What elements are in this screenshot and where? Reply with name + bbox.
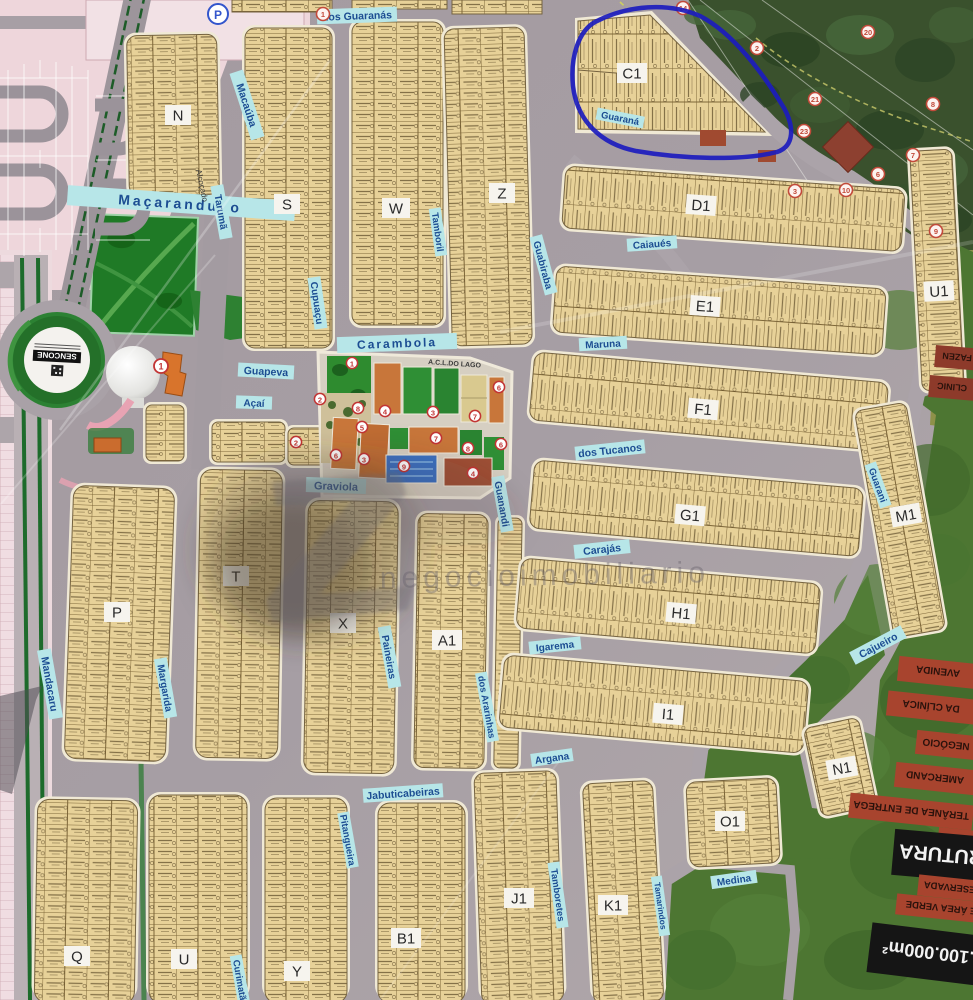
svg-text:7: 7 xyxy=(473,413,477,422)
svg-text:5: 5 xyxy=(360,424,364,433)
svg-text:23: 23 xyxy=(800,127,808,136)
svg-text:Carambola: Carambola xyxy=(357,335,437,352)
svg-text:Açaí: Açaí xyxy=(243,398,266,410)
svg-text:M1: M1 xyxy=(894,506,917,526)
svg-text:E1: E1 xyxy=(695,298,715,316)
svg-text:8: 8 xyxy=(356,405,360,414)
svg-text:U1: U1 xyxy=(929,283,949,301)
svg-text:Q: Q xyxy=(71,949,83,966)
svg-text:2: 2 xyxy=(294,439,298,448)
svg-text:A1: A1 xyxy=(438,633,456,650)
svg-text:F1: F1 xyxy=(694,401,713,419)
svg-text:6: 6 xyxy=(497,384,501,393)
svg-text:6: 6 xyxy=(876,170,880,179)
svg-text:7: 7 xyxy=(911,151,915,160)
svg-text:1: 1 xyxy=(321,10,325,19)
svg-text:B1: B1 xyxy=(397,931,415,948)
svg-text:P: P xyxy=(112,605,122,622)
svg-text:negocioimobiliario: negocioimobiliario xyxy=(380,556,711,595)
svg-text:U: U xyxy=(179,952,190,969)
svg-text:2: 2 xyxy=(318,396,322,405)
svg-text:7: 7 xyxy=(434,435,438,444)
svg-text:10: 10 xyxy=(842,186,850,195)
svg-text:1: 1 xyxy=(158,362,163,372)
svg-text:2: 2 xyxy=(755,44,759,53)
svg-text:Maruna: Maruna xyxy=(585,339,622,352)
svg-text:8: 8 xyxy=(931,100,935,109)
svg-text:S: S xyxy=(282,197,292,214)
svg-text:J1: J1 xyxy=(511,891,527,908)
svg-text:C1: C1 xyxy=(622,66,641,83)
svg-text:G1: G1 xyxy=(679,507,700,526)
svg-text:20: 20 xyxy=(864,28,872,37)
svg-text:Z: Z xyxy=(497,186,506,203)
svg-text:H1: H1 xyxy=(671,605,692,624)
svg-text:3: 3 xyxy=(793,187,797,196)
svg-text:N: N xyxy=(173,108,184,125)
svg-text:P: P xyxy=(214,8,222,22)
svg-text:21: 21 xyxy=(811,95,819,104)
svg-text:O1: O1 xyxy=(720,814,740,831)
svg-text:1: 1 xyxy=(350,360,354,369)
svg-text:6: 6 xyxy=(499,441,503,450)
svg-text:dos Guaranás: dos Guaranás xyxy=(322,9,393,23)
svg-text:K1: K1 xyxy=(604,898,622,915)
svg-text:D1: D1 xyxy=(691,197,711,215)
svg-text:I1: I1 xyxy=(661,706,675,724)
svg-text:Y: Y xyxy=(292,964,302,981)
svg-text:W: W xyxy=(389,201,404,218)
svg-text:N1: N1 xyxy=(831,759,853,779)
svg-text:3: 3 xyxy=(431,409,435,418)
svg-text:Guapeva: Guapeva xyxy=(243,365,288,379)
svg-text:8: 8 xyxy=(466,445,470,454)
svg-text:9: 9 xyxy=(934,227,938,236)
